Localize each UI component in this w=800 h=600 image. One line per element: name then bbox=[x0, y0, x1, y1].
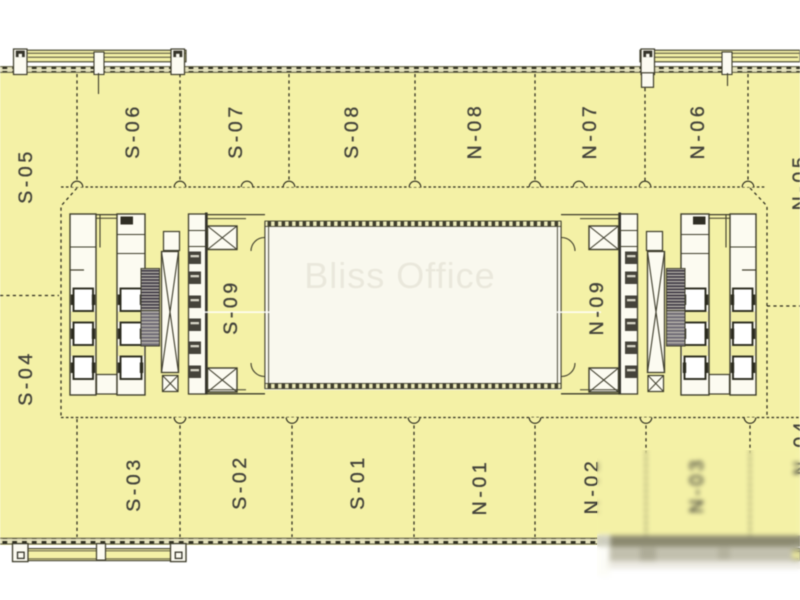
svg-text:N-07: N-07 bbox=[579, 103, 601, 160]
svg-text:S-08: S-08 bbox=[341, 103, 363, 159]
svg-text:Bliss Office: Bliss Office bbox=[304, 255, 495, 296]
svg-text:S-07: S-07 bbox=[225, 103, 247, 159]
svg-text:N-06: N-06 bbox=[687, 103, 709, 160]
svg-text:S-06: S-06 bbox=[122, 103, 144, 159]
svg-text:N-01: N-01 bbox=[469, 459, 491, 516]
svg-text:N-08: N-08 bbox=[464, 103, 486, 160]
svg-text:S-01: S-01 bbox=[347, 454, 369, 510]
svg-text:S-03: S-03 bbox=[123, 456, 145, 512]
svg-text:N-09: N-09 bbox=[586, 279, 608, 336]
svg-text:S-02: S-02 bbox=[229, 454, 251, 510]
svg-text:N-05: N-05 bbox=[789, 154, 800, 211]
svg-text:S-09: S-09 bbox=[220, 279, 242, 335]
svg-text:S-04: S-04 bbox=[15, 350, 37, 406]
svg-text:S-05: S-05 bbox=[15, 148, 37, 204]
